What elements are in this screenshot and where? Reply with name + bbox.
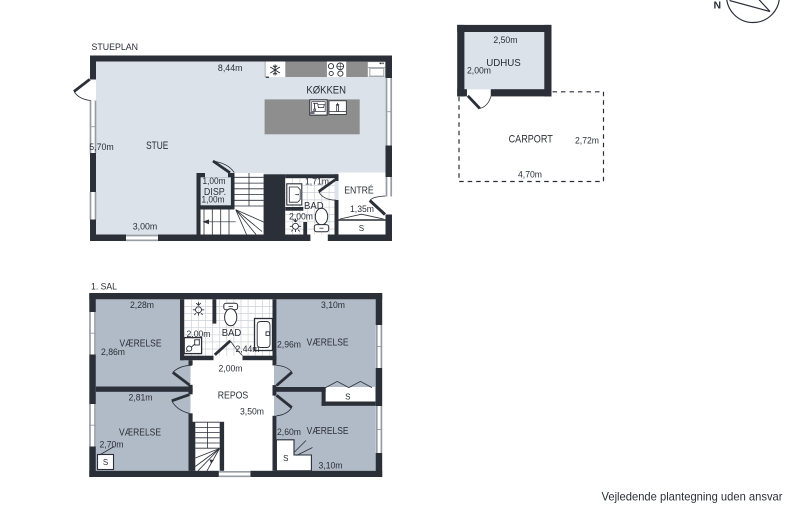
svg-text:STUEPLAN: STUEPLAN xyxy=(92,42,139,52)
svg-text:ENTRÉ: ENTRÉ xyxy=(344,186,374,197)
svg-text:VÆRELSE: VÆRELSE xyxy=(307,337,349,348)
svg-text:VÆRELSE: VÆRELSE xyxy=(120,338,162,349)
svg-text:2,00m: 2,00m xyxy=(187,329,211,339)
svg-text:2,50m: 2,50m xyxy=(493,35,517,45)
svg-text:S: S xyxy=(359,224,364,233)
svg-text:VÆRELSE: VÆRELSE xyxy=(119,427,161,438)
svg-text:BAD: BAD xyxy=(222,328,242,339)
svg-text:1,35m: 1,35m xyxy=(350,204,374,214)
svg-text:5,70m: 5,70m xyxy=(89,142,114,152)
svg-text:8,44m: 8,44m xyxy=(218,63,243,73)
svg-text:4,70m: 4,70m xyxy=(518,170,542,180)
svg-text:1,00m: 1,00m xyxy=(202,194,225,204)
svg-text:S: S xyxy=(345,393,350,402)
svg-text:S: S xyxy=(283,454,288,463)
svg-text:KØKKEN: KØKKEN xyxy=(306,84,346,96)
svg-text:2,96m: 2,96m xyxy=(277,339,301,349)
svg-text:UDHUS: UDHUS xyxy=(486,58,521,69)
svg-text:3,10m: 3,10m xyxy=(319,461,343,471)
svg-text:2,81m: 2,81m xyxy=(129,392,153,402)
svg-text:CARPORT: CARPORT xyxy=(509,134,553,146)
svg-text:3,50m: 3,50m xyxy=(240,407,264,417)
svg-text:2,72m: 2,72m xyxy=(575,136,599,146)
svg-text:1. SAL: 1. SAL xyxy=(91,282,117,292)
svg-text:3,00m: 3,00m xyxy=(133,222,158,232)
svg-text:2,00m: 2,00m xyxy=(467,65,491,75)
svg-text:1,00m: 1,00m xyxy=(203,176,226,186)
svg-text:2,28m: 2,28m xyxy=(130,300,154,310)
svg-text:3,10m: 3,10m xyxy=(321,300,345,310)
svg-text:2,60m: 2,60m xyxy=(277,427,301,437)
svg-text:VÆRELSE: VÆRELSE xyxy=(307,426,349,437)
svg-text:S: S xyxy=(103,458,108,467)
svg-text:2,00m: 2,00m xyxy=(289,211,313,221)
svg-text:N: N xyxy=(714,0,722,12)
svg-text:1,71m: 1,71m xyxy=(305,177,329,187)
svg-text:STUE: STUE xyxy=(146,140,168,152)
svg-text:REPOS: REPOS xyxy=(218,390,249,401)
svg-text:Vejledende plantegning uden an: Vejledende plantegning uden ansvar xyxy=(602,490,783,504)
svg-text:2,00m: 2,00m xyxy=(219,363,243,373)
svg-text:2,70m: 2,70m xyxy=(100,440,124,450)
